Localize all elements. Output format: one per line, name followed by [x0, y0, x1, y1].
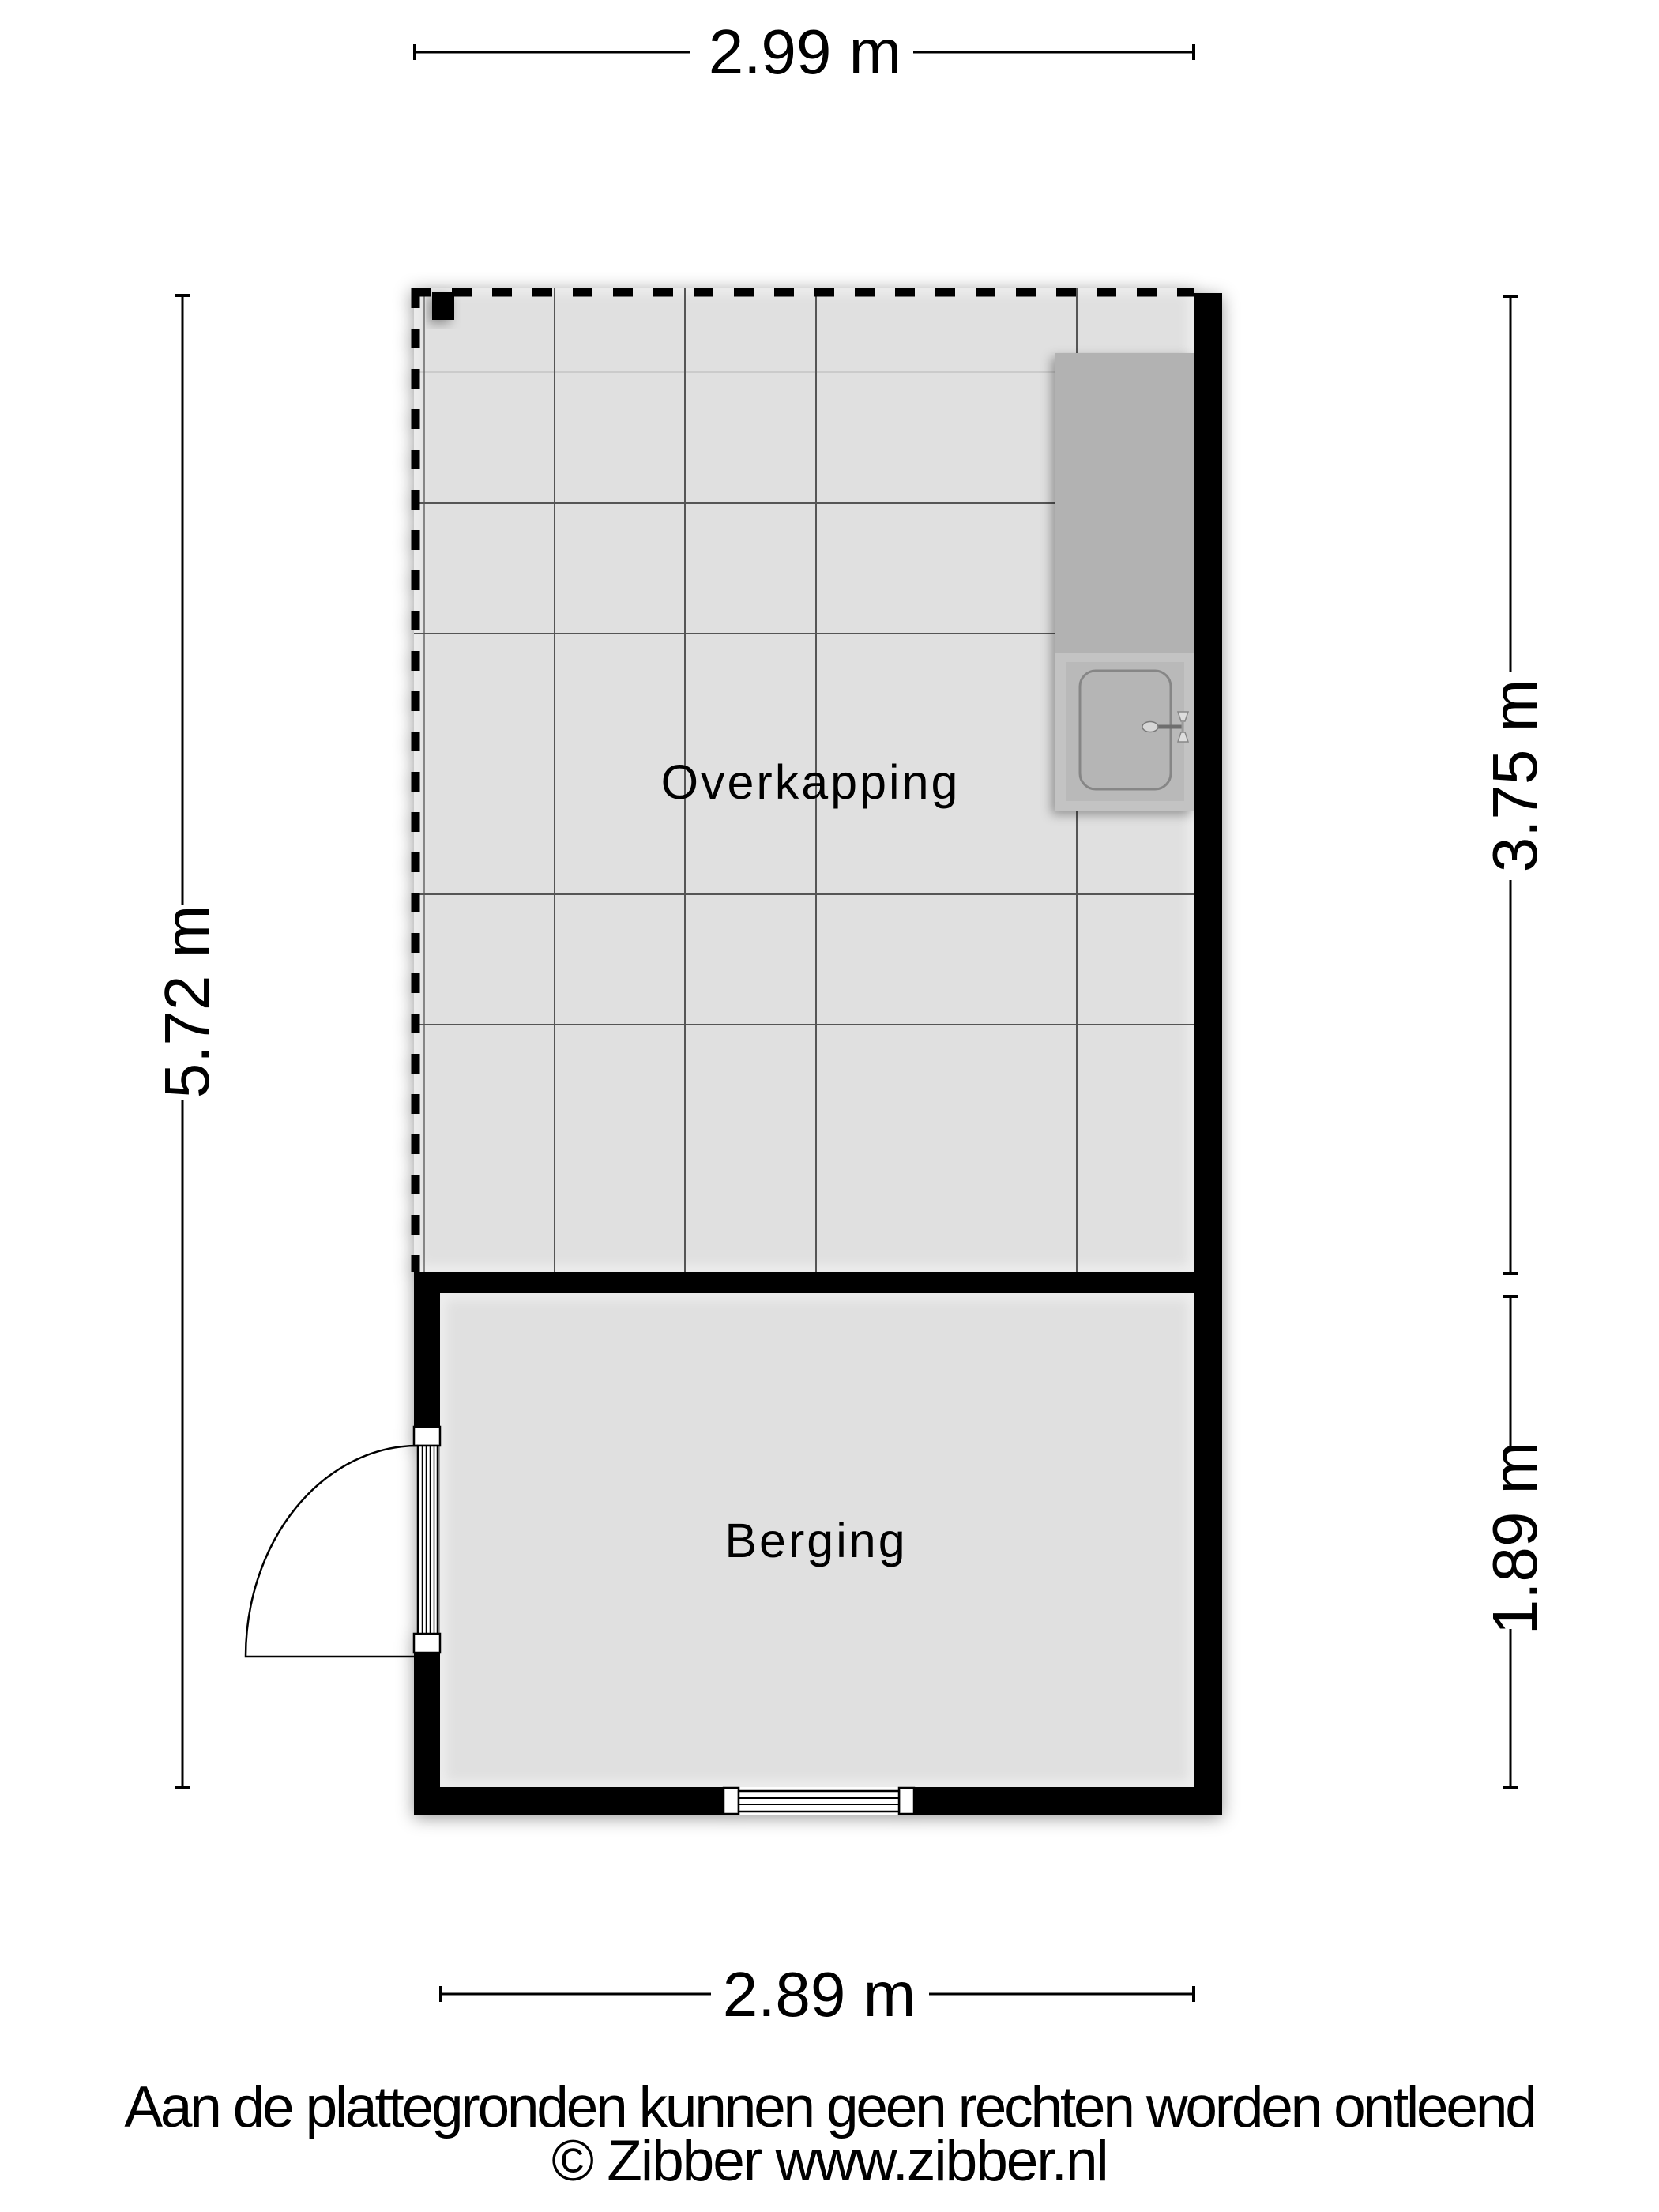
- svg-text:3.75 m: 3.75 m: [1480, 679, 1550, 873]
- svg-text:© Zibber www.zibber.nl: © Zibber www.zibber.nl: [551, 2129, 1108, 2193]
- svg-text:Overkapping: Overkapping: [661, 755, 961, 809]
- svg-text:Berging: Berging: [724, 1514, 907, 1567]
- svg-text:5.72 m: 5.72 m: [152, 905, 222, 1099]
- svg-text:2.99 m: 2.99 m: [709, 17, 902, 87]
- svg-text:2.89 m: 2.89 m: [723, 1959, 916, 2030]
- svg-text:1.89 m: 1.89 m: [1480, 1442, 1550, 1635]
